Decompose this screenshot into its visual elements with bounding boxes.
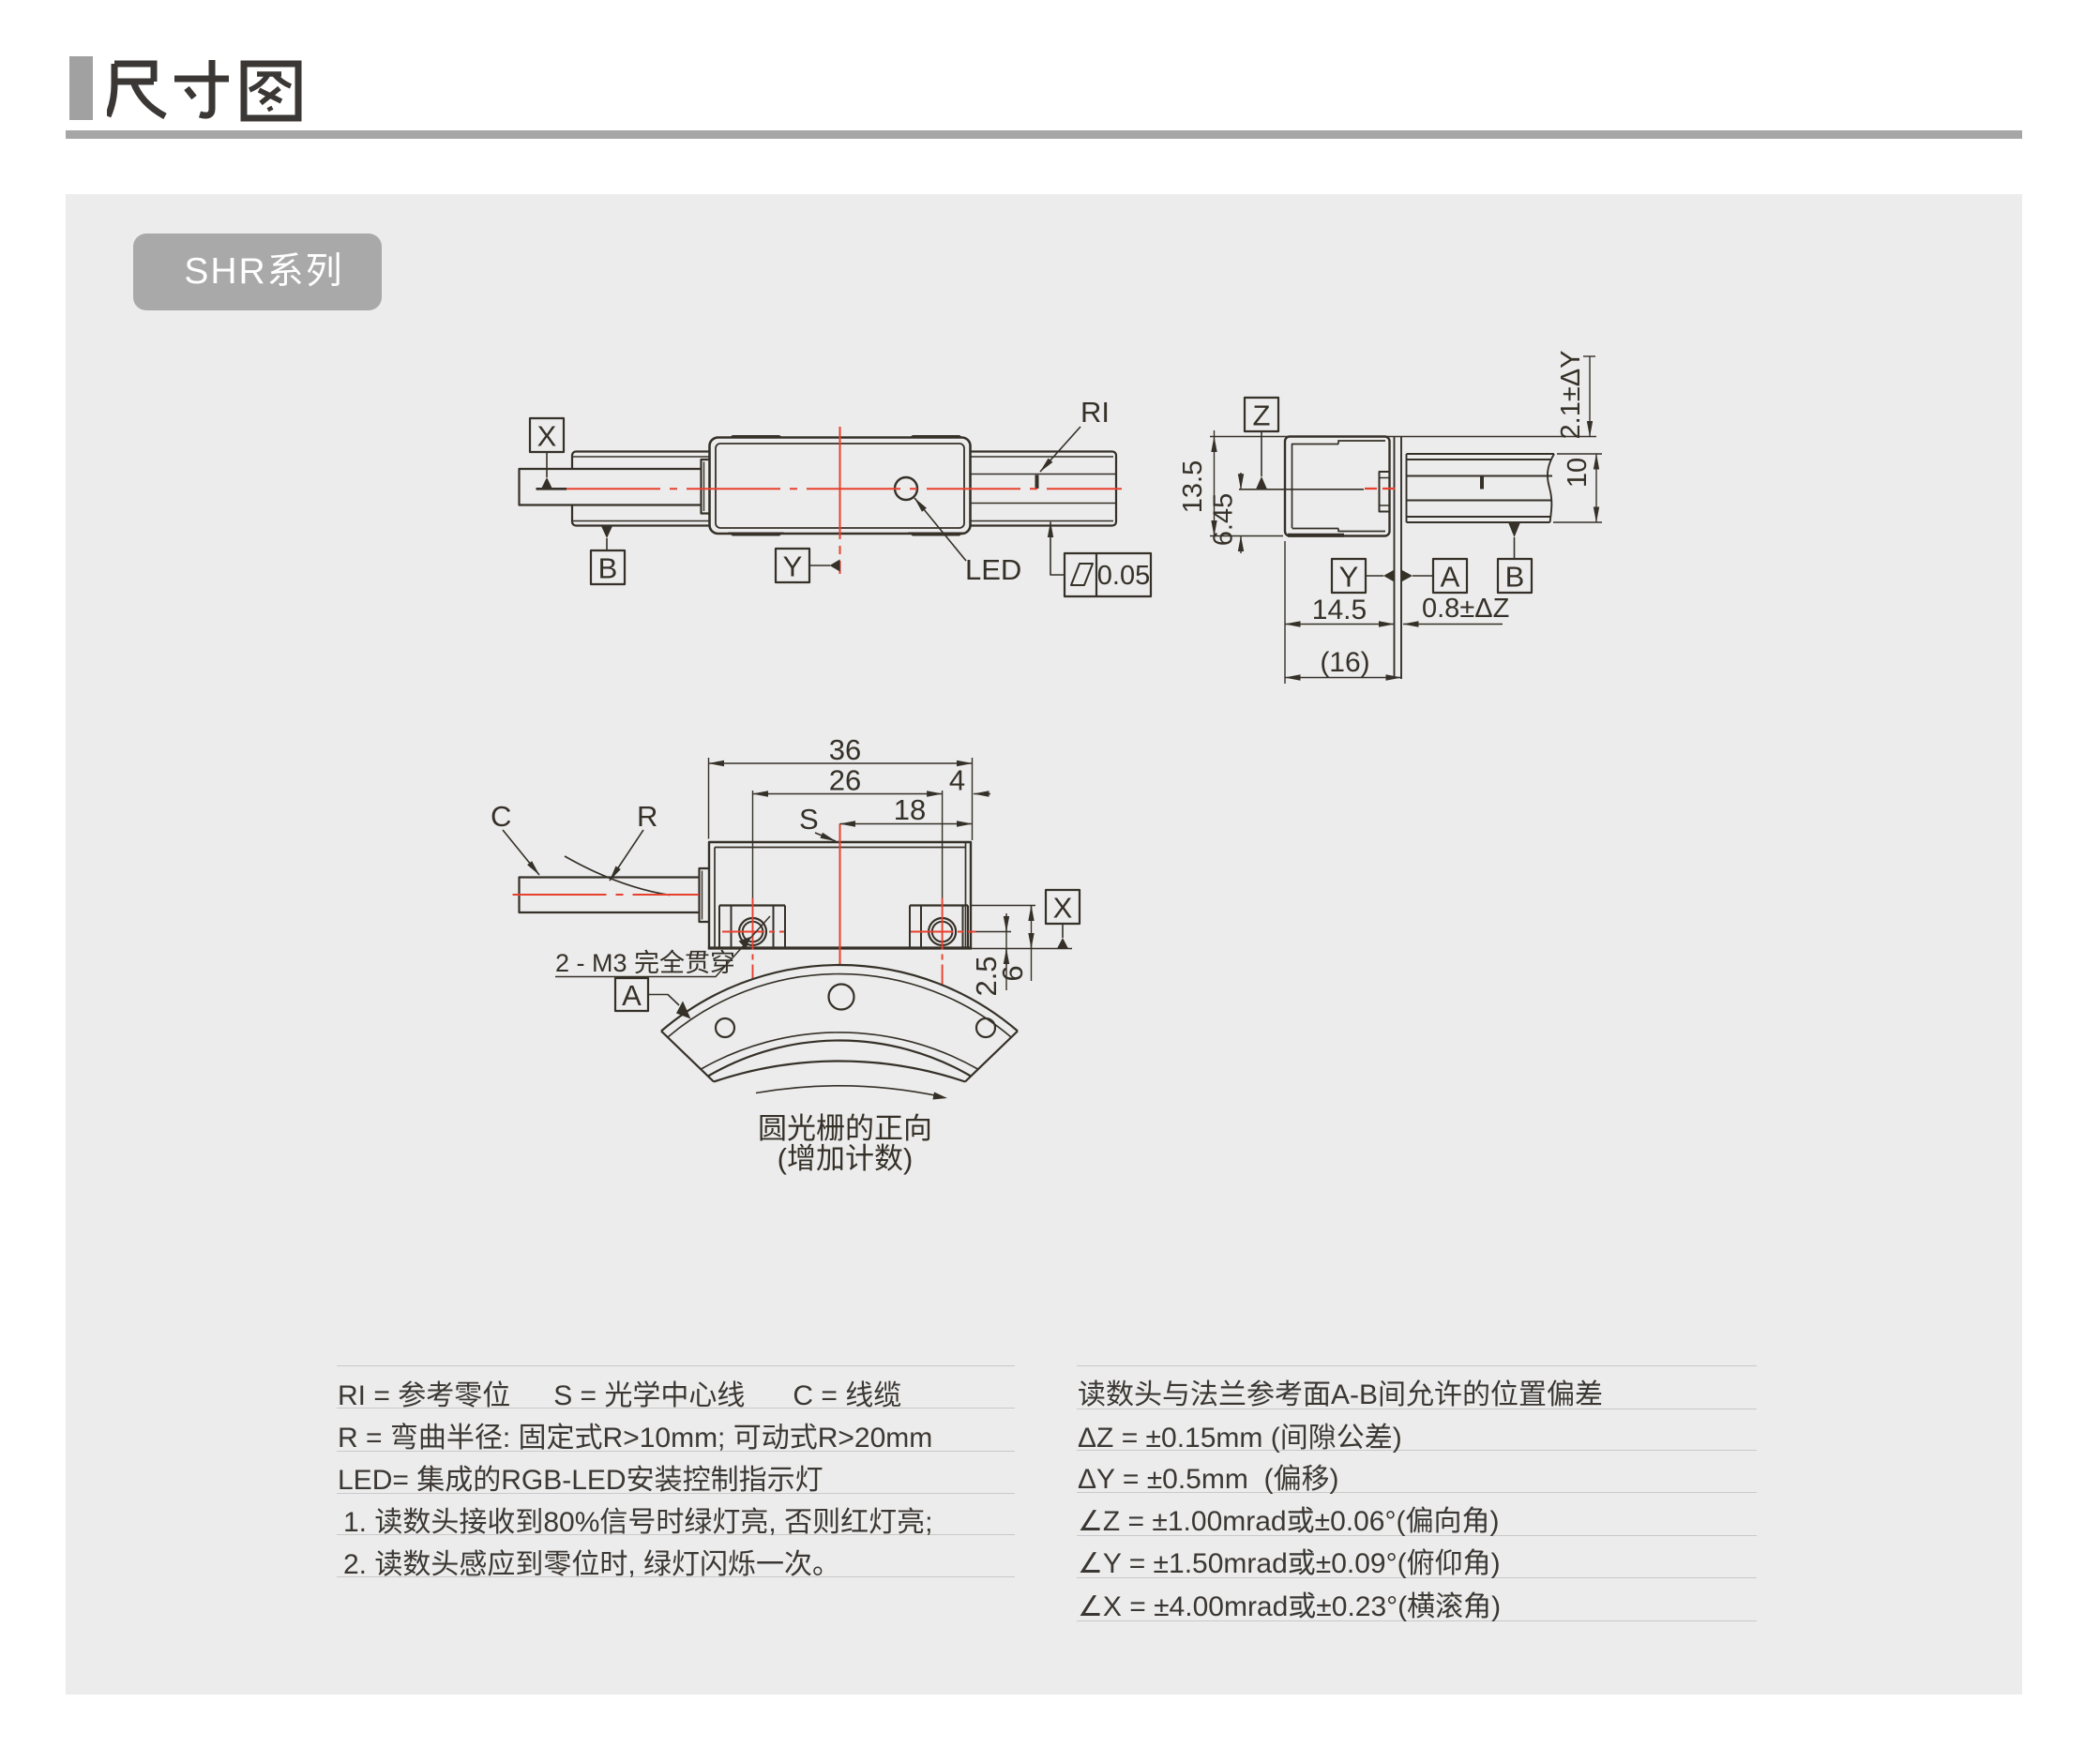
svg-text:4: 4 <box>949 764 965 797</box>
svg-text:13.5: 13.5 <box>1178 460 1208 513</box>
svg-text:R: R <box>637 800 657 833</box>
svg-text:(增加计数): (增加计数) <box>778 1142 914 1175</box>
svg-text:2.5: 2.5 <box>970 956 1003 996</box>
svg-text:LED: LED <box>965 553 1021 586</box>
svg-text:36: 36 <box>829 733 861 766</box>
svg-text:RI: RI <box>1080 396 1110 429</box>
svg-text:26: 26 <box>829 764 861 797</box>
svg-text:14.5: 14.5 <box>1312 595 1367 625</box>
svg-text:C: C <box>491 800 511 833</box>
svg-text:6.45: 6.45 <box>1209 493 1239 546</box>
svg-text:X: X <box>1053 892 1073 925</box>
svg-text:0.05: 0.05 <box>1097 561 1150 591</box>
svg-text:0.8±ΔZ: 0.8±ΔZ <box>1422 594 1509 624</box>
svg-text:10: 10 <box>1563 458 1593 488</box>
svg-text:(16): (16) <box>1320 647 1369 678</box>
svg-text:Y: Y <box>1339 561 1359 594</box>
svg-text:18: 18 <box>894 793 926 826</box>
svg-text:Y: Y <box>783 550 803 583</box>
svg-text:B: B <box>598 552 618 585</box>
svg-text:S: S <box>799 803 819 836</box>
svg-text:X: X <box>537 420 557 453</box>
svg-text:2.1±ΔY: 2.1±ΔY <box>1556 351 1586 440</box>
svg-text:圆光栅的正向: 圆光栅的正向 <box>758 1112 932 1145</box>
svg-text:B: B <box>1505 561 1525 594</box>
svg-text:A: A <box>622 979 642 1012</box>
svg-text:Z: Z <box>1253 399 1271 432</box>
svg-text:2 - M3 完全贯穿: 2 - M3 完全贯穿 <box>555 949 735 977</box>
svg-text:A: A <box>1441 561 1460 594</box>
